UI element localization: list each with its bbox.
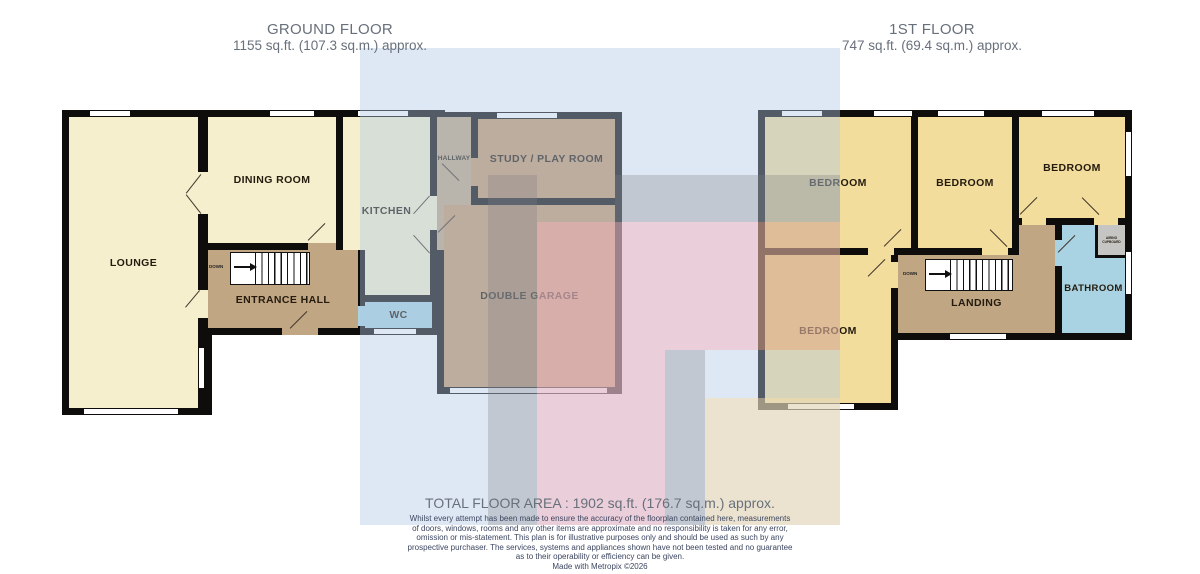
stairs-arrow-line-first [929, 273, 945, 275]
opening-front-door [282, 328, 318, 335]
room-bedroom-4: BEDROOM [765, 255, 891, 403]
disclaimer-line-3: omission or mis-statement. This plan is … [350, 533, 850, 543]
opening-bedroom3-door-right [1094, 218, 1118, 225]
ground-floor-area: 1155 sq.ft. (107.3 sq.m.) approx. [130, 38, 530, 53]
room-label-bedroom-1: BEDROOM [809, 177, 867, 189]
watermark-overlay-pink-wide [665, 222, 758, 350]
window-study-top [497, 112, 557, 119]
room-label-entrance-hall: ENTRANCE HALL [208, 294, 358, 306]
room-label-hallway: HALLWAY [433, 155, 475, 162]
stair-treads-ground [255, 253, 309, 284]
opening-hall-wc [358, 306, 365, 326]
room-label-landing: LANDING [898, 297, 1055, 309]
stairs-down-label-ground: DOWN [209, 264, 223, 269]
disclaimer-line-1: Whilst every attempt has been made to en… [350, 514, 850, 524]
opening-kitchen-hallway [430, 196, 437, 230]
room-airing-cupboard: AIRING CUPBOARD [1095, 225, 1125, 258]
window-dining-top [270, 110, 314, 117]
stairs-down-label-first: DOWN [903, 271, 917, 276]
room-label-bedroom-2: BEDROOM [936, 177, 994, 189]
window-kitchen-top [358, 110, 408, 117]
first-floor-header: 1ST FLOOR 747 sq.ft. (69.4 sq.m.) approx… [732, 21, 1132, 53]
room-lounge: LOUNGE [69, 117, 198, 408]
metropix-credit: Made with Metropix ©2026 [350, 562, 850, 572]
room-dining: DINING ROOM [208, 117, 336, 243]
disclaimer-line-5: as to their operability or efficiency ca… [350, 552, 850, 562]
stairs-arrow-head-ground [250, 263, 257, 271]
disclaimer: Whilst every attempt has been made to en… [350, 514, 850, 572]
room-garage: DOUBLE GARAGE [444, 205, 615, 387]
window-lounge-right [198, 348, 205, 388]
room-label-bedroom-3: BEDROOM [1043, 162, 1101, 174]
window-bedroom1-top-left [782, 110, 822, 117]
opening-lounge-hall [198, 290, 208, 318]
room-label-garage: DOUBLE GARAGE [480, 290, 579, 302]
room-bedroom-2: BEDROOM [918, 117, 1012, 248]
room-kitchen-lower [365, 250, 430, 295]
total-floor-area: TOTAL FLOOR AREA : 1902 sq.ft. (176.7 sq… [300, 495, 900, 511]
stair-treads-first [950, 260, 1012, 290]
staircase-ground [230, 252, 310, 285]
opening-dining-hall [308, 243, 336, 250]
room-kitchen: KITCHEN [343, 117, 430, 250]
disclaimer-line-4: prospective purchaser. The services, sys… [350, 543, 850, 553]
window-bedroom3-top [1042, 110, 1094, 117]
stairs-arrow-head-first [945, 270, 952, 278]
room-label-study: STUDY / PLAY ROOM [490, 153, 603, 165]
window-bedroom3-right [1125, 132, 1132, 176]
stairs-arrow-line-ground [234, 266, 250, 268]
window-landing-bottom [950, 333, 1006, 340]
window-lounge-bottom [84, 408, 178, 415]
opening-bedroom1-door [868, 248, 894, 255]
window-lounge-top [90, 110, 130, 117]
opening-bedroom3-door-left [1022, 218, 1046, 225]
room-wc: WC [365, 302, 432, 328]
room-label-dining: DINING ROOM [234, 174, 311, 186]
room-bedroom-1: BEDROOM [765, 117, 911, 248]
room-label-bathroom: BATHROOM [1060, 283, 1127, 294]
garage-door-opening [450, 387, 607, 394]
opening-lounge-dining [198, 172, 208, 214]
opening-bedroom4-door [891, 262, 898, 288]
ground-floor-title: GROUND FLOOR [130, 21, 530, 38]
window-bedroom1-top-right [874, 110, 912, 117]
room-label-bedroom-4: BEDROOM [765, 325, 891, 337]
floorplan-canvas: GROUND FLOOR 1155 sq.ft. (107.3 sq.m.) a… [0, 0, 1200, 574]
room-label-wc: WC [389, 309, 407, 321]
room-study: STUDY / PLAY ROOM [478, 119, 615, 198]
window-bedroom2-top [938, 110, 984, 117]
ground-floor-header: GROUND FLOOR 1155 sq.ft. (107.3 sq.m.) a… [130, 21, 530, 53]
room-label-airing-cupboard: AIRING CUPBOARD [1098, 236, 1125, 244]
room-bedroom-3: BEDROOM [1019, 117, 1125, 218]
opening-bedroom2-door [982, 248, 1008, 255]
room-label-lounge: LOUNGE [110, 257, 157, 269]
staircase-first [925, 259, 1013, 291]
window-bathroom-right [1125, 252, 1132, 294]
window-wc-bottom [374, 328, 416, 335]
first-floor-area: 747 sq.ft. (69.4 sq.m.) approx. [732, 38, 1132, 53]
opening-hallway-study [471, 158, 478, 186]
disclaimer-line-2: of doors, windows, rooms and any other i… [350, 524, 850, 534]
first-floor-title: 1ST FLOOR [732, 21, 1132, 38]
window-bedroom4-bottom [788, 403, 854, 410]
